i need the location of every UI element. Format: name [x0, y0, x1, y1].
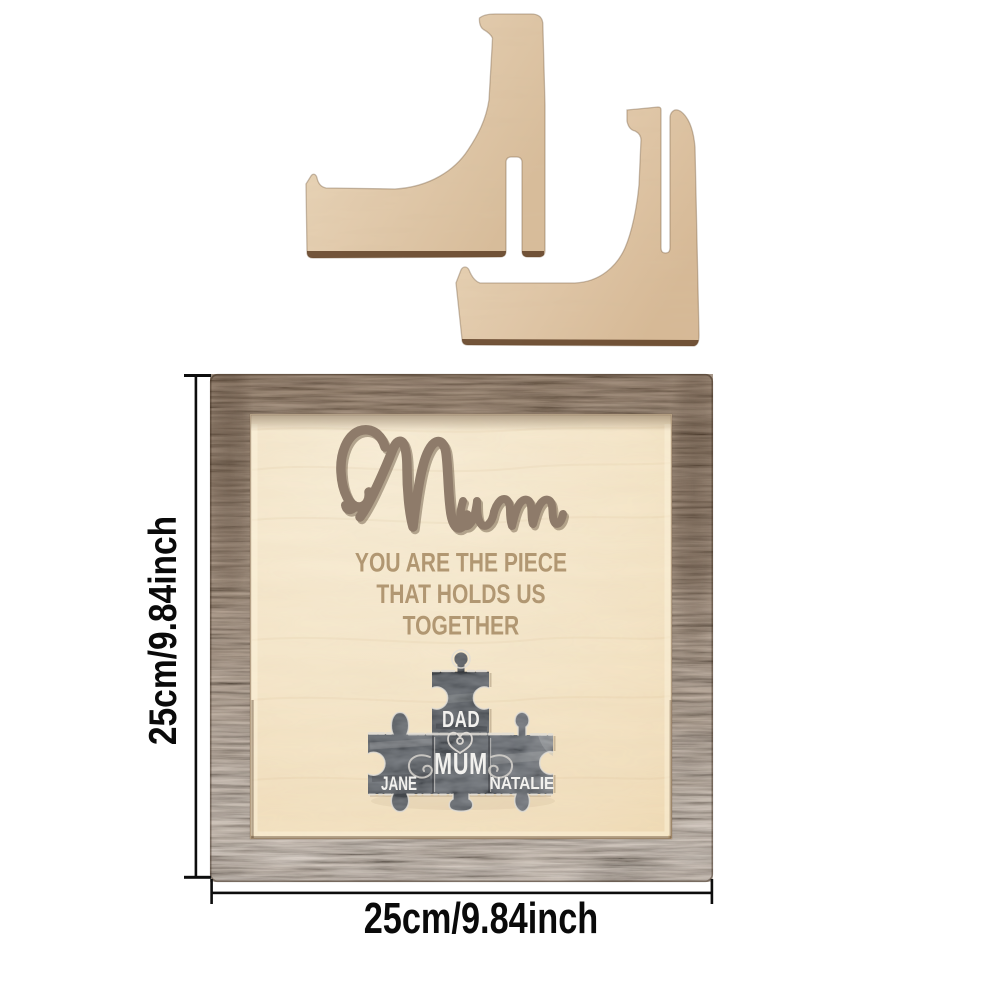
svg-text:THAT HOLDS US: THAT HOLDS US: [376, 580, 545, 610]
svg-text:DAD: DAD: [442, 708, 480, 733]
svg-text:MUM: MUM: [434, 746, 488, 781]
svg-text:25cm/9.84inch: 25cm/9.84inch: [364, 894, 599, 943]
svg-text:YOU ARE THE PIECE: YOU ARE THE PIECE: [355, 548, 567, 578]
svg-text:JANE: JANE: [381, 774, 417, 795]
svg-text:25cm/9.84inch: 25cm/9.84inch: [141, 516, 185, 745]
svg-text:NATALIE: NATALIE: [490, 773, 555, 793]
svg-text:TOGETHER: TOGETHER: [403, 611, 520, 641]
